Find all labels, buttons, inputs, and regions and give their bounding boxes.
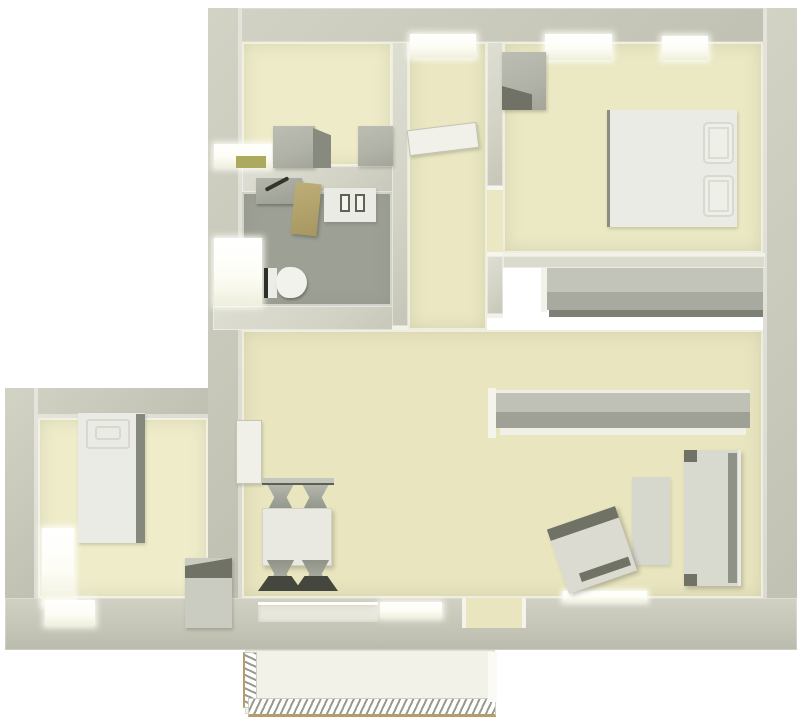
closet-row-top	[545, 268, 763, 292]
balcony-door-opening	[462, 598, 526, 628]
closet-row-front	[545, 292, 763, 310]
sideboard-endcap	[488, 388, 496, 438]
wall-hall-west	[392, 42, 408, 330]
wall-bedroom-south	[503, 253, 765, 268]
living-window-band	[563, 591, 647, 602]
kitchen-cabinet-2	[358, 126, 393, 166]
shower-screen	[290, 182, 321, 236]
sideboard-base	[500, 428, 746, 435]
chair-backrest-1	[262, 478, 299, 485]
chair-backrest-2	[297, 478, 334, 485]
small-bedroom-door-leaf	[236, 420, 262, 484]
wall-bedroom-west-lower	[487, 252, 503, 318]
single-bed-pillow	[95, 426, 121, 440]
washing-machine-slot-2	[355, 194, 365, 212]
floor-plan-render	[0, 0, 800, 725]
sideboard-top	[496, 390, 750, 412]
small-bedroom-window-left	[42, 528, 74, 606]
balcony-post-right	[488, 652, 497, 702]
wall-right-exterior	[763, 8, 797, 650]
bedroom-window-2	[662, 36, 708, 60]
dining-table	[262, 508, 332, 566]
small-bedroom-dresser	[185, 558, 232, 628]
small-bedroom-dresser-top	[185, 558, 232, 578]
toilet-bowl	[276, 267, 307, 298]
living-window-sill-2	[380, 602, 442, 618]
kitchen-window-sill-olive	[236, 156, 266, 168]
bedroom-doorway	[487, 190, 503, 252]
sofa	[684, 450, 741, 586]
sofa-armrest-top	[684, 450, 697, 462]
washing-machine-slot-1	[340, 194, 350, 212]
wall-top-exterior	[208, 8, 797, 42]
living-window-sill-1	[258, 602, 378, 622]
entry-hall-floor	[408, 42, 487, 330]
wall-bathroom-south	[213, 306, 408, 330]
bedroom-window-1	[545, 34, 612, 60]
entrance-opening	[410, 34, 476, 58]
sideboard-front	[496, 412, 750, 428]
wall-wing-left	[5, 388, 38, 598]
sofa-armrest-bottom	[684, 574, 697, 586]
small-bedroom-window-bottom	[45, 600, 95, 626]
closet-row-endcap	[541, 268, 547, 312]
closet-row-base	[549, 310, 763, 317]
balcony-railing-bottom	[248, 698, 496, 717]
wall-bedroom-west-upper	[487, 42, 503, 190]
sofa-backrest	[728, 453, 737, 583]
single-bed-side	[136, 414, 145, 543]
single-bed-headboard	[86, 419, 130, 449]
bed-pillow-2	[703, 175, 734, 217]
bed-pillow-1	[703, 122, 734, 164]
coffee-table	[632, 477, 670, 565]
washing-machine	[324, 188, 376, 222]
kitchen-cabinet-1	[273, 126, 315, 168]
bathroom-window	[214, 238, 262, 306]
